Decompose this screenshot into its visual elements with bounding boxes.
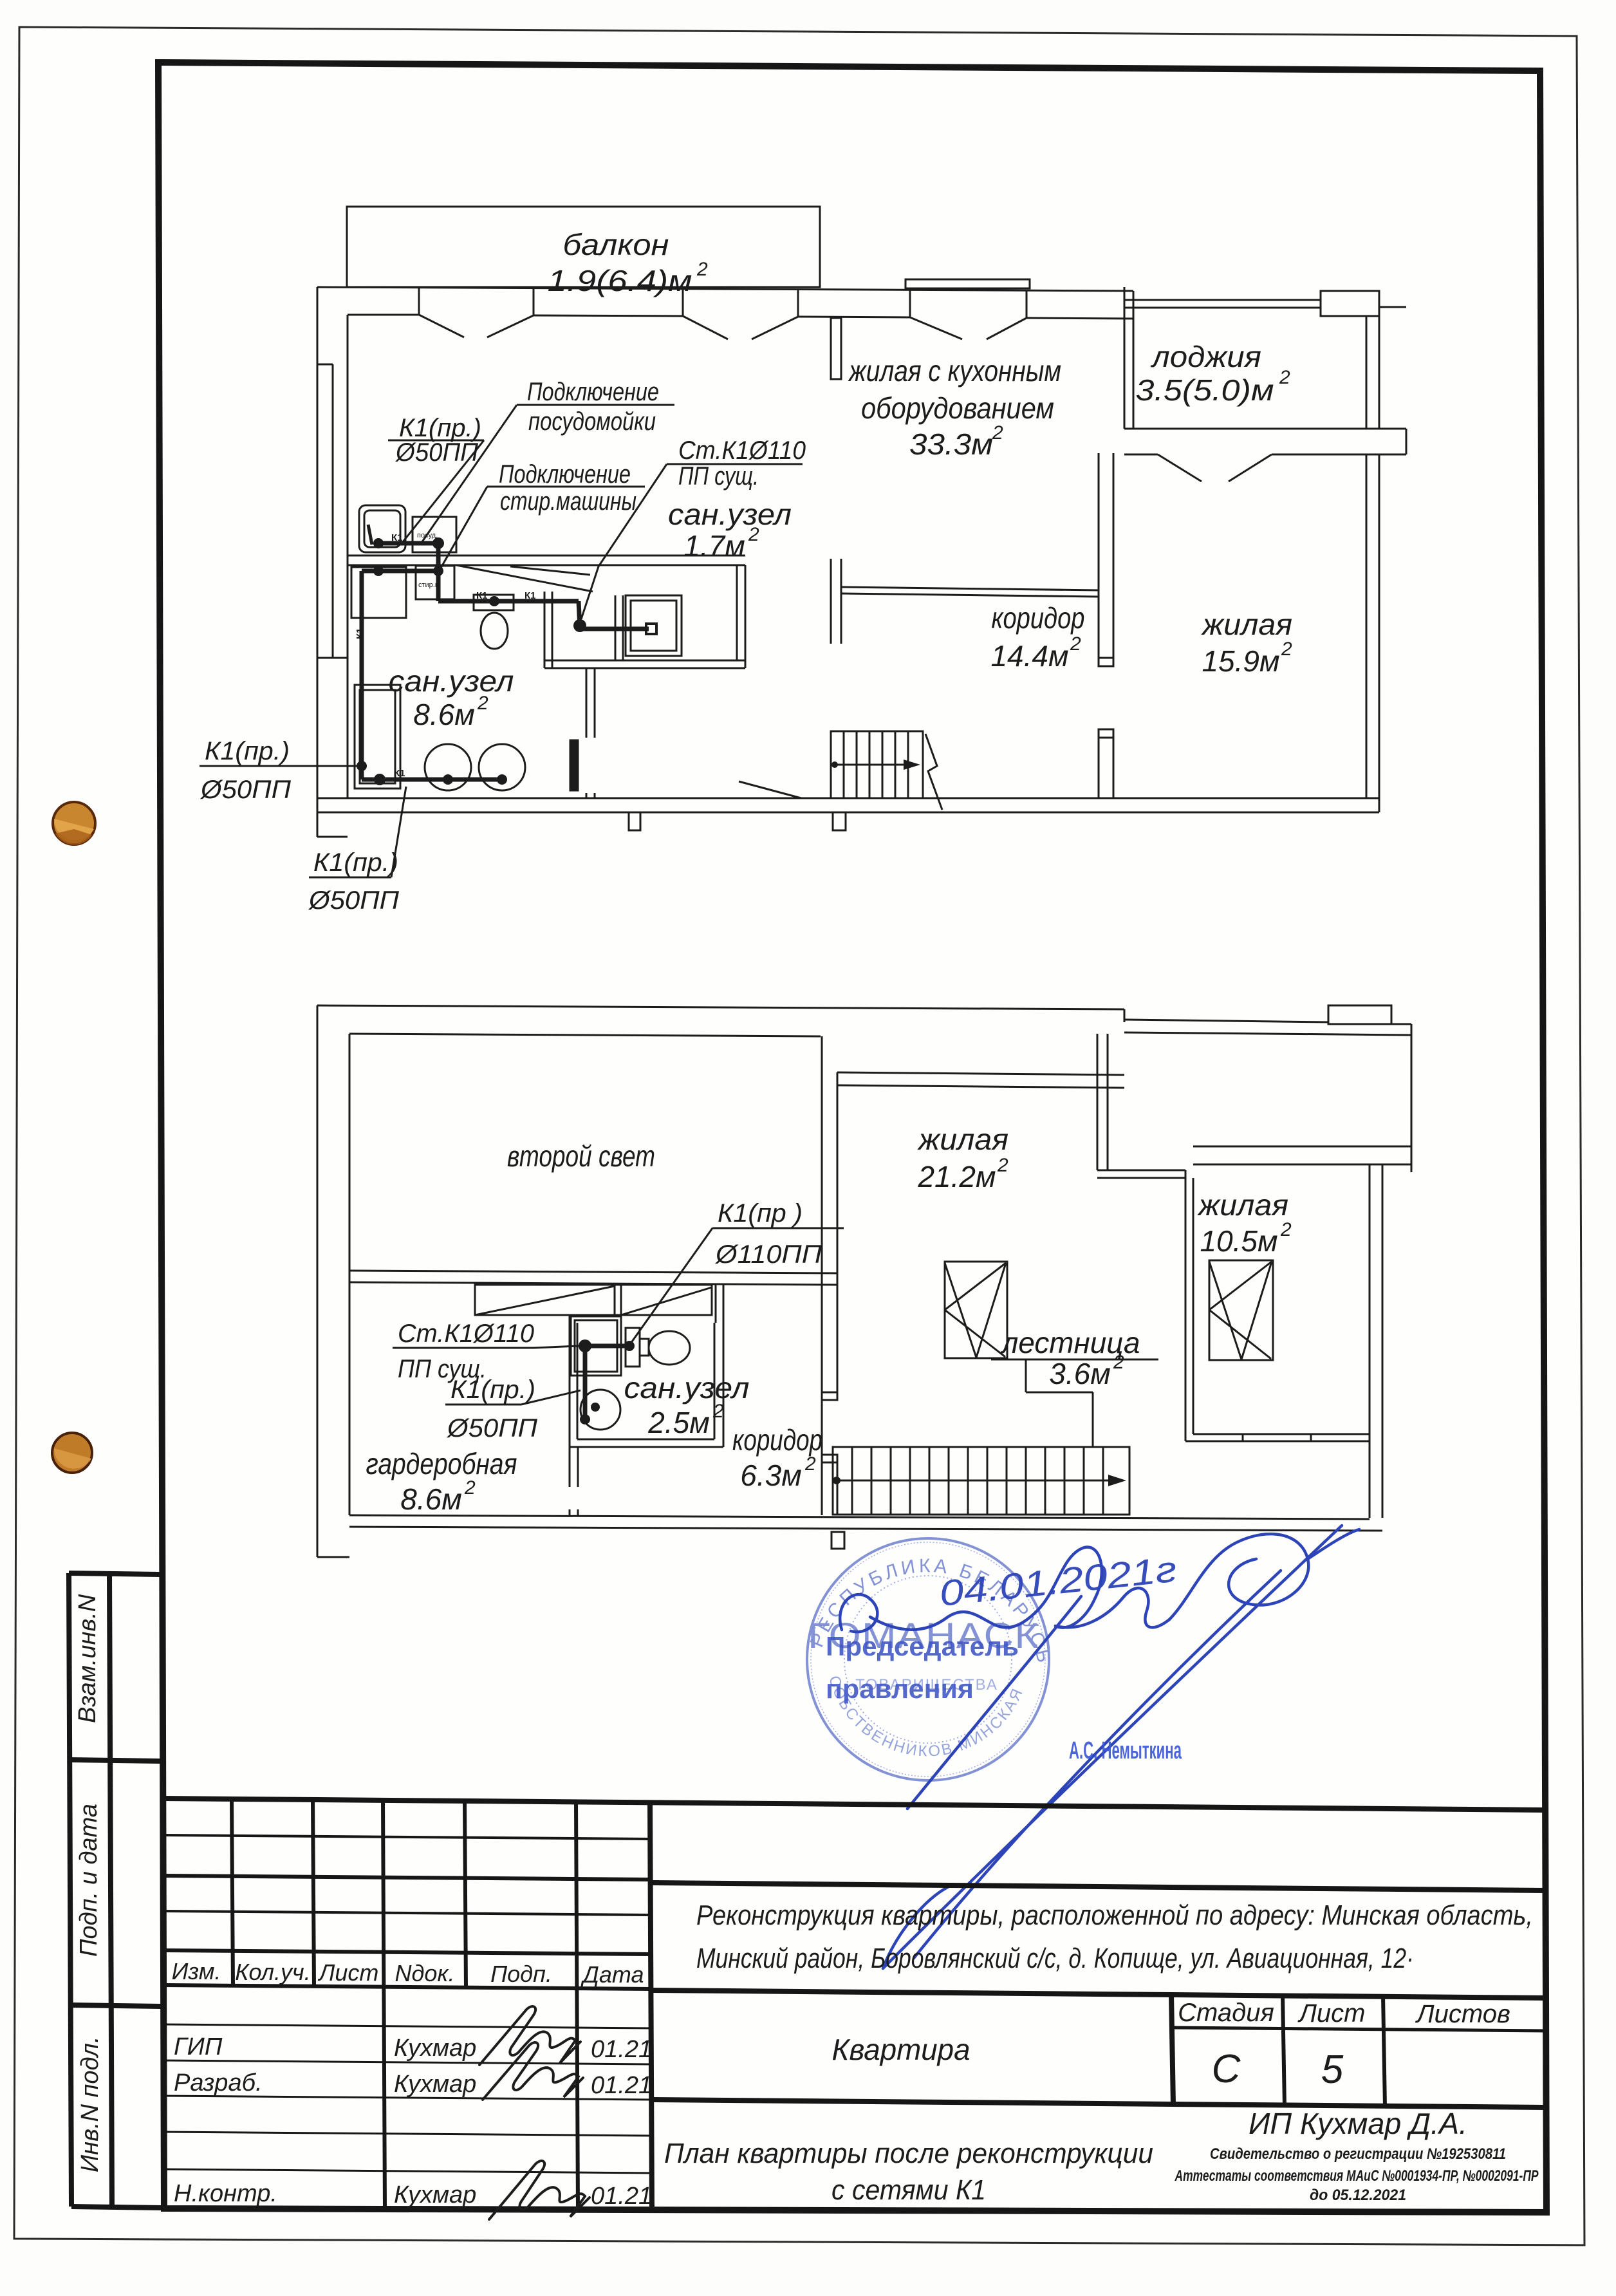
svg-text:33.3м: 33.3м — [909, 427, 993, 461]
svg-text:2: 2 — [1113, 1352, 1124, 1373]
svg-text:15.9м: 15.9м — [1202, 644, 1279, 678]
svg-text:14.4м: 14.4м — [990, 639, 1068, 673]
svg-text:коридор: коридор — [992, 601, 1085, 635]
svg-text:Кухмар: Кухмар — [394, 2071, 476, 2098]
svg-text:Подключение: Подключение — [527, 378, 659, 406]
svg-text:2: 2 — [1281, 639, 1292, 660]
svg-text:коридор: коридор — [732, 1423, 822, 1457]
svg-text:Ø110ПП: Ø110ПП — [714, 1240, 822, 1269]
svg-text:Дата: Дата — [580, 1961, 644, 1988]
svg-text:гардеробная: гардеробная — [366, 1447, 517, 1480]
svg-text:2: 2 — [1070, 633, 1081, 655]
svg-text:Кол.уч.: Кол.уч. — [235, 1959, 310, 1985]
svg-text:Стадия: Стадия — [1178, 1999, 1274, 2027]
svg-text:правления: правления — [826, 1674, 974, 1704]
svg-text:второй свет: второй свет — [507, 1139, 655, 1173]
svg-text:8.6м: 8.6м — [400, 1482, 461, 1516]
svg-text:Подп.: Подп. — [490, 1961, 552, 1987]
svg-text:8.6м: 8.6м — [413, 698, 474, 731]
svg-text:Лист: Лист — [318, 1959, 379, 1986]
svg-text:Изм.: Изм. — [172, 1958, 221, 1984]
svg-text:Аттестаты соответствия МАиС №: Аттестаты соответствия МАиС №0001934-ПР,… — [1175, 2167, 1539, 2185]
svg-text:Реконструкция квартиры, распол: Реконструкция квартиры, расположенной по… — [696, 1899, 1533, 1931]
svg-text:К1: К1 — [394, 768, 405, 779]
svg-text:ПП сущ.: ПП сущ. — [678, 462, 759, 490]
svg-text:Кухмар: Кухмар — [394, 2181, 476, 2208]
svg-text:с сетями К1: с сетями К1 — [831, 2174, 986, 2206]
svg-text:2: 2 — [464, 1477, 476, 1498]
svg-text:10.5м: 10.5м — [1200, 1224, 1277, 1258]
svg-text:жилая: жилая — [917, 1123, 1008, 1156]
svg-text:Свидетельство о регистрации №: Свидетельство о регистрации №192530811 — [1210, 2145, 1506, 2163]
svg-text:оборудованием: оборудованием — [861, 391, 1054, 425]
svg-text:К1(пр.): К1(пр.) — [205, 737, 290, 765]
svg-text:Ø50ПП: Ø50ПП — [200, 776, 292, 804]
svg-text:2: 2 — [804, 1453, 816, 1475]
svg-text:ИП Кухмар Д.А.: ИП Кухмар Д.А. — [1249, 2107, 1467, 2140]
svg-text:К1: К1 — [391, 532, 403, 543]
svg-text:2: 2 — [712, 1401, 724, 1422]
svg-text:2: 2 — [696, 259, 708, 280]
svg-text:жилая: жилая — [1201, 608, 1292, 641]
svg-text:2: 2 — [1279, 367, 1290, 388]
svg-text:жилая: жилая — [1197, 1188, 1288, 1222]
svg-text:Ст.К1Ø110: Ст.К1Ø110 — [678, 436, 806, 465]
svg-text:01.21: 01.21 — [591, 2183, 652, 2210]
svg-text:01.21: 01.21 — [591, 2072, 652, 2099]
svg-text:А.С. Немыткина: А.С. Немыткина — [1069, 1737, 1182, 1764]
svg-text:жилая с кухонным: жилая с кухонным — [848, 354, 1061, 387]
svg-text:К1: К1 — [525, 590, 536, 601]
svg-text:Nдок.: Nдок. — [395, 1960, 455, 1986]
svg-text:2: 2 — [1280, 1219, 1292, 1240]
svg-text:01.21: 01.21 — [591, 2036, 652, 2063]
svg-text:сан.узел: сан.узел — [668, 498, 792, 531]
svg-text:2: 2 — [748, 524, 759, 545]
svg-text:21.2м: 21.2м — [917, 1160, 996, 1193]
svg-text:Разраб.: Разраб. — [174, 2069, 263, 2096]
svg-text:лоджия: лоджия — [1150, 340, 1261, 373]
svg-text:Ст.К1Ø110: Ст.К1Ø110 — [398, 1320, 534, 1348]
svg-text:стир.машины: стир.машины — [500, 487, 636, 516]
svg-text:2: 2 — [997, 1155, 1008, 1176]
svg-text:1.9(6.4)м: 1.9(6.4)м — [548, 264, 692, 297]
svg-text:Минский район, Боровлянский с/: Минский район, Боровлянский с/с, д. Копи… — [696, 1943, 1414, 1974]
svg-text:С: С — [1212, 2047, 1241, 2091]
svg-text:1.7м: 1.7м — [683, 529, 745, 563]
svg-text:Инв.N подл.: Инв.N подл. — [77, 2036, 104, 2172]
svg-text:3.5(5.0)м: 3.5(5.0)м — [1136, 373, 1274, 407]
svg-text:План квартиры после реконструк: План квартиры после реконструкции — [664, 2138, 1153, 2169]
svg-text:2: 2 — [992, 422, 1003, 443]
svg-text:Подключение: Подключение — [499, 460, 631, 489]
svg-text:до 05.12.2021: до 05.12.2021 — [1310, 2187, 1406, 2204]
svg-text:сан.узел: сан.узел — [624, 1371, 750, 1405]
svg-text:К1(пр.): К1(пр.) — [450, 1376, 535, 1404]
svg-text:К1(пр ): К1(пр ) — [718, 1199, 803, 1227]
svg-text:ГИП: ГИП — [174, 2033, 223, 2060]
svg-text:Листов: Листов — [1415, 2000, 1510, 2028]
svg-text:6.3м: 6.3м — [740, 1459, 801, 1492]
svg-text:2: 2 — [477, 693, 488, 714]
svg-text:3.6м: 3.6м — [1049, 1357, 1110, 1390]
svg-text:К1(пр.): К1(пр.) — [313, 848, 398, 877]
svg-text:Председатель: Председатель — [826, 1631, 1019, 1661]
svg-text:Подп. и дата: Подп. и дата — [75, 1804, 102, 1957]
svg-text:К1: К1 — [476, 590, 488, 601]
svg-text:балкон: балкон — [563, 228, 669, 261]
svg-text:Ø50ПП: Ø50ПП — [308, 886, 400, 915]
svg-text:Квартира: Квартира — [832, 2033, 971, 2066]
svg-text:2.5м: 2.5м — [647, 1406, 709, 1439]
svg-text:Взам.инв.N: Взам.инв.N — [74, 1594, 101, 1723]
svg-text:Ø50ПП: Ø50ПП — [446, 1414, 538, 1442]
svg-text:посудомойки: посудомойки — [528, 407, 656, 436]
svg-text:Кухмар: Кухмар — [394, 2035, 476, 2062]
svg-text:сан.узел: сан.узел — [389, 664, 514, 698]
svg-text:5: 5 — [1321, 2048, 1344, 2092]
svg-text:Н.контр.: Н.контр. — [174, 2180, 277, 2207]
svg-text:Лист: Лист — [1297, 1999, 1366, 2028]
svg-text:К1: К1 — [355, 628, 366, 640]
